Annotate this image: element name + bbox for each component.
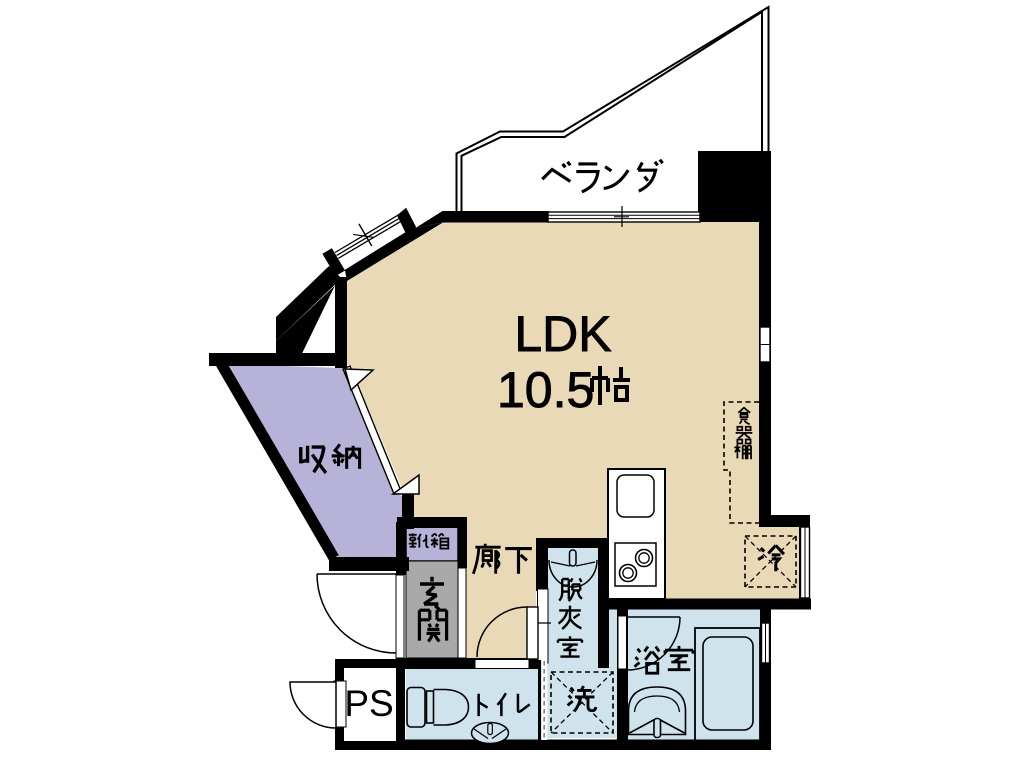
svg-text:10.5: 10.5 bbox=[497, 362, 594, 418]
svg-text:LDK: LDK bbox=[514, 306, 611, 362]
svg-text:PS: PS bbox=[344, 683, 393, 724]
